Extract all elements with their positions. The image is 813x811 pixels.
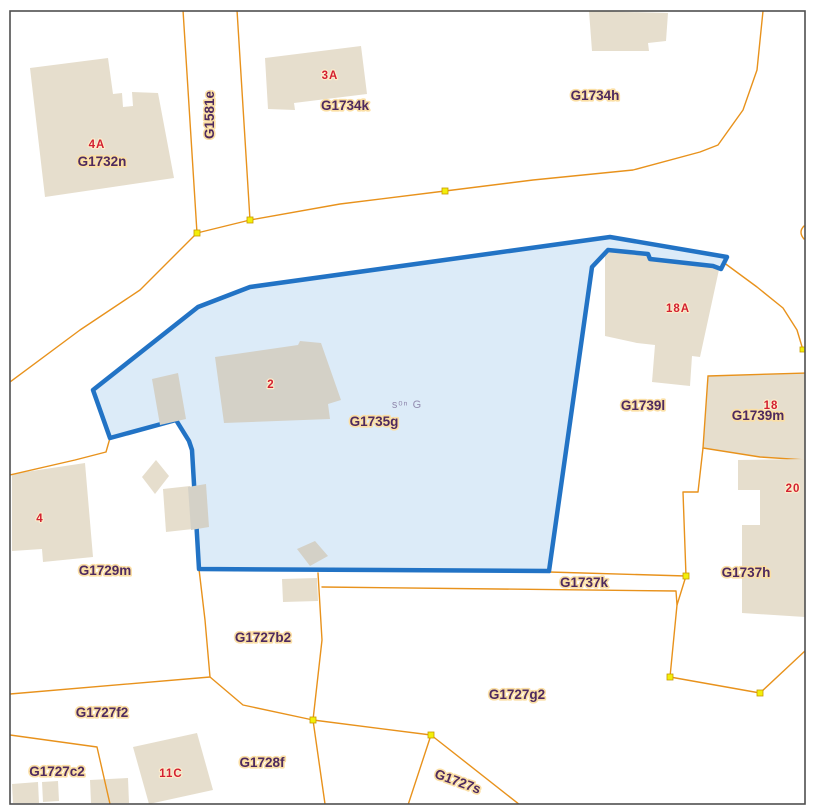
building-small-b bbox=[42, 781, 59, 802]
house-number-11c: 11C bbox=[159, 768, 182, 780]
house-number-18a: 18A bbox=[666, 303, 690, 315]
parcel-label-g1737h: G1737h bbox=[722, 565, 771, 580]
building-small-a bbox=[12, 782, 39, 803]
map-watermark-text: sᵒⁿ G bbox=[392, 399, 422, 411]
house-number-4: 4 bbox=[36, 513, 43, 525]
parcel-label-g1727b2: G1727b2 bbox=[235, 630, 291, 645]
parcel-label-g1732n: G1732n bbox=[78, 154, 127, 169]
parcel-label-g1734h: G1734h bbox=[571, 88, 620, 103]
house-number-2: 2 bbox=[267, 379, 274, 391]
parcel-label-g1735g: G1735g bbox=[350, 414, 399, 429]
parcel-label-g1739l: G1739l bbox=[621, 398, 665, 413]
house-number-20: 20 bbox=[786, 483, 801, 495]
house-number-4a: 4A bbox=[89, 139, 106, 151]
map-canvas[interactable]: G1732n G1581e G1734k G1734h G1735g G1739… bbox=[0, 0, 813, 811]
parcel-label-g1727c2: G1727c2 bbox=[29, 764, 85, 779]
map-viewport[interactable]: G1732n G1581e G1734k G1734h G1735g G1739… bbox=[0, 0, 813, 811]
parcel-label-g1728f: G1728f bbox=[239, 755, 285, 770]
parcel-label-g1727g2: G1727g2 bbox=[489, 687, 545, 702]
parcel-label-g1737k: G1737k bbox=[560, 575, 609, 590]
building-below-strip bbox=[282, 578, 318, 602]
house-number-18: 18 bbox=[764, 400, 779, 412]
house-number-3a: 3A bbox=[322, 70, 339, 82]
parcel-label-g1727f2: G1727f2 bbox=[76, 705, 129, 720]
parcel-label-g1729m: G1729m bbox=[79, 563, 132, 578]
parcel-label-g1581e: G1581e bbox=[202, 90, 217, 139]
building-pair-east bbox=[188, 484, 209, 530]
building-4 bbox=[12, 463, 93, 562]
parcel-label-g1734k: G1734k bbox=[321, 98, 370, 113]
